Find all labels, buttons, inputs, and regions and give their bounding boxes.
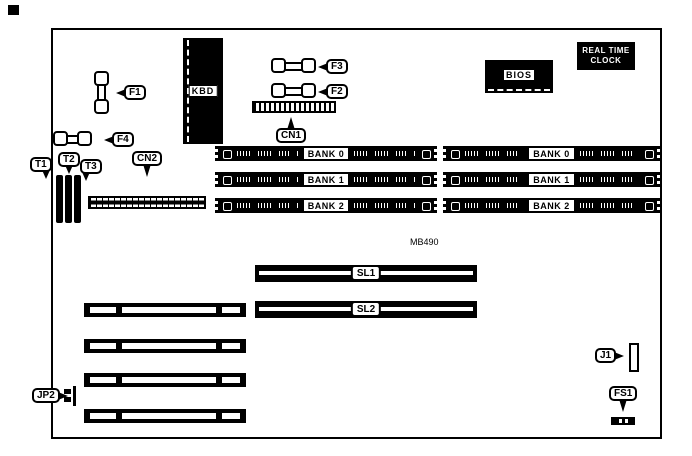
- callout-j1: J1: [595, 348, 628, 363]
- callout-f3: F3: [314, 59, 348, 74]
- fs1-connector: [611, 417, 635, 425]
- j1-connector: [629, 343, 639, 372]
- slot-segment: [90, 343, 116, 349]
- j1-label: J1: [595, 348, 616, 363]
- callout-pointer-down-icon: [619, 399, 627, 416]
- cn1-label: CN1: [276, 128, 306, 143]
- simm-socket-left-bank0: BANK 0: [215, 146, 437, 161]
- kbd-connector: KBD: [183, 38, 223, 144]
- slot-segment: [222, 307, 240, 313]
- socket-latch-icon: [419, 146, 432, 161]
- slot-segment: [122, 307, 216, 313]
- callout-pointer-right-icon: [614, 352, 628, 360]
- bank-label: BANK 0: [527, 146, 576, 161]
- slot-segment: [90, 307, 116, 313]
- rtc-label-line1: REAL TIME: [582, 46, 629, 56]
- fuse-f4-cap-right: [77, 131, 92, 146]
- simm-socket-right-bank0: BANK 0: [443, 146, 660, 161]
- jumper-block-icon: [64, 389, 71, 394]
- rtc-label-line2: CLOCK: [591, 56, 622, 66]
- socket-latch-icon: [448, 172, 461, 187]
- t2-label: T2: [58, 152, 80, 167]
- f1-label: F1: [124, 85, 146, 100]
- socket-latch-icon: [448, 146, 461, 161]
- cn2-pin-header: [88, 196, 206, 209]
- fuse-f4-cap-left: [53, 131, 68, 146]
- isa-slot-1: [84, 303, 246, 317]
- socket-contacts: [461, 198, 527, 213]
- sl1-label: SL1: [351, 265, 381, 281]
- fs1-label: FS1: [609, 386, 637, 401]
- socket-contacts: [350, 198, 419, 213]
- bank-label: BANK 1: [302, 172, 351, 187]
- socket-end-bracket-icon: [432, 172, 437, 187]
- callout-f4: F4: [100, 132, 134, 147]
- t1-label: T1: [30, 157, 52, 172]
- sl2-label: SL2: [351, 301, 381, 317]
- socket-latch-icon: [220, 146, 233, 161]
- bank-label: BANK 2: [302, 198, 351, 213]
- cn1-pin-header: [252, 101, 336, 113]
- bios-label: BIOS: [503, 69, 535, 81]
- simm-socket-left-bank1: BANK 1: [215, 172, 437, 187]
- slot-segment: [122, 343, 216, 349]
- isa-slot-2: [84, 339, 246, 353]
- fuse-f3-cap-left: [271, 58, 286, 73]
- fuse-f2-cap-left: [271, 83, 286, 98]
- socket-end-bracket-icon: [432, 198, 437, 213]
- jumper-pin-icon: [73, 386, 76, 406]
- socket-contacts: [350, 146, 419, 161]
- socket-latch-icon: [419, 172, 432, 187]
- jp2-jumper: [64, 386, 76, 406]
- callout-cn1: CN1: [276, 113, 306, 143]
- pin-dot-icon: [619, 419, 622, 423]
- slot-sl1: SL1: [255, 265, 477, 282]
- socket-contacts: [576, 146, 642, 161]
- socket-end-bracket-icon: [432, 146, 437, 161]
- socket-latch-icon: [642, 172, 655, 187]
- slot-sl2: SL2: [255, 301, 477, 318]
- callout-pointer-down-icon: [143, 164, 151, 181]
- fuse-f1-cap-top: [94, 71, 109, 86]
- jumper-block-icon: [64, 397, 71, 402]
- slot-segment: [90, 377, 116, 383]
- real-time-clock-chip: REAL TIME CLOCK: [577, 42, 635, 70]
- cn2-label: CN2: [132, 151, 162, 166]
- socket-latch-icon: [419, 198, 432, 213]
- t2-component: [65, 175, 72, 223]
- motherboard-layout-diagram: KBD F1 F3 F2 F4 CN1 CN2 T1: [0, 0, 692, 456]
- callout-f2: F2: [314, 84, 348, 99]
- callout-f1: F1: [112, 85, 146, 100]
- socket-contacts: [233, 172, 302, 187]
- slot-segment: [122, 377, 216, 383]
- callout-fs1: FS1: [609, 386, 637, 416]
- f4-label: F4: [112, 132, 134, 147]
- socket-contacts: [576, 172, 642, 187]
- fuse-f2-cap-right: [301, 83, 316, 98]
- simm-socket-right-bank2: BANK 2: [443, 198, 660, 213]
- t3-label: T3: [80, 159, 102, 174]
- kbd-label: KBD: [189, 85, 218, 97]
- socket-latch-icon: [448, 198, 461, 213]
- t3-component: [74, 175, 81, 223]
- socket-contacts: [233, 198, 302, 213]
- socket-latch-icon: [642, 198, 655, 213]
- slot-segment: [90, 413, 116, 419]
- socket-end-bracket-icon: [655, 172, 660, 187]
- simm-socket-left-bank2: BANK 2: [215, 198, 437, 213]
- isa-slot-4: [84, 409, 246, 423]
- bank-label: BANK 1: [527, 172, 576, 187]
- t1-component: [56, 175, 63, 223]
- socket-contacts: [350, 172, 419, 187]
- socket-latch-icon: [642, 146, 655, 161]
- slot-segment: [222, 343, 240, 349]
- slot-segment: [122, 413, 216, 419]
- slot-segment: [222, 413, 240, 419]
- socket-contacts: [576, 198, 642, 213]
- slot-segment: [222, 377, 240, 383]
- socket-end-bracket-icon: [655, 198, 660, 213]
- f2-label: F2: [326, 84, 348, 99]
- fuse-f3-cap-right: [301, 58, 316, 73]
- fuse-f1-cap-bottom: [94, 99, 109, 114]
- jp2-label: JP2: [32, 388, 60, 403]
- callout-t1: T1: [30, 157, 52, 183]
- callout-cn2: CN2: [132, 151, 162, 181]
- board-model-label: MB490: [410, 237, 439, 247]
- f3-label: F3: [326, 59, 348, 74]
- socket-latch-icon: [220, 172, 233, 187]
- socket-contacts: [233, 146, 302, 161]
- isa-slot-3: [84, 373, 246, 387]
- simm-socket-right-bank1: BANK 1: [443, 172, 660, 187]
- corner-mark: [8, 5, 19, 15]
- socket-contacts: [461, 172, 527, 187]
- socket-contacts: [461, 146, 527, 161]
- bank-label: BANK 2: [527, 198, 576, 213]
- callout-t3: T3: [80, 159, 102, 185]
- bank-label: BANK 0: [302, 146, 351, 161]
- socket-latch-icon: [220, 198, 233, 213]
- bios-chip: BIOS: [485, 60, 553, 93]
- socket-end-bracket-icon: [655, 146, 660, 161]
- bios-dashed-edge: [488, 89, 550, 91]
- pin-dot-icon: [625, 419, 628, 423]
